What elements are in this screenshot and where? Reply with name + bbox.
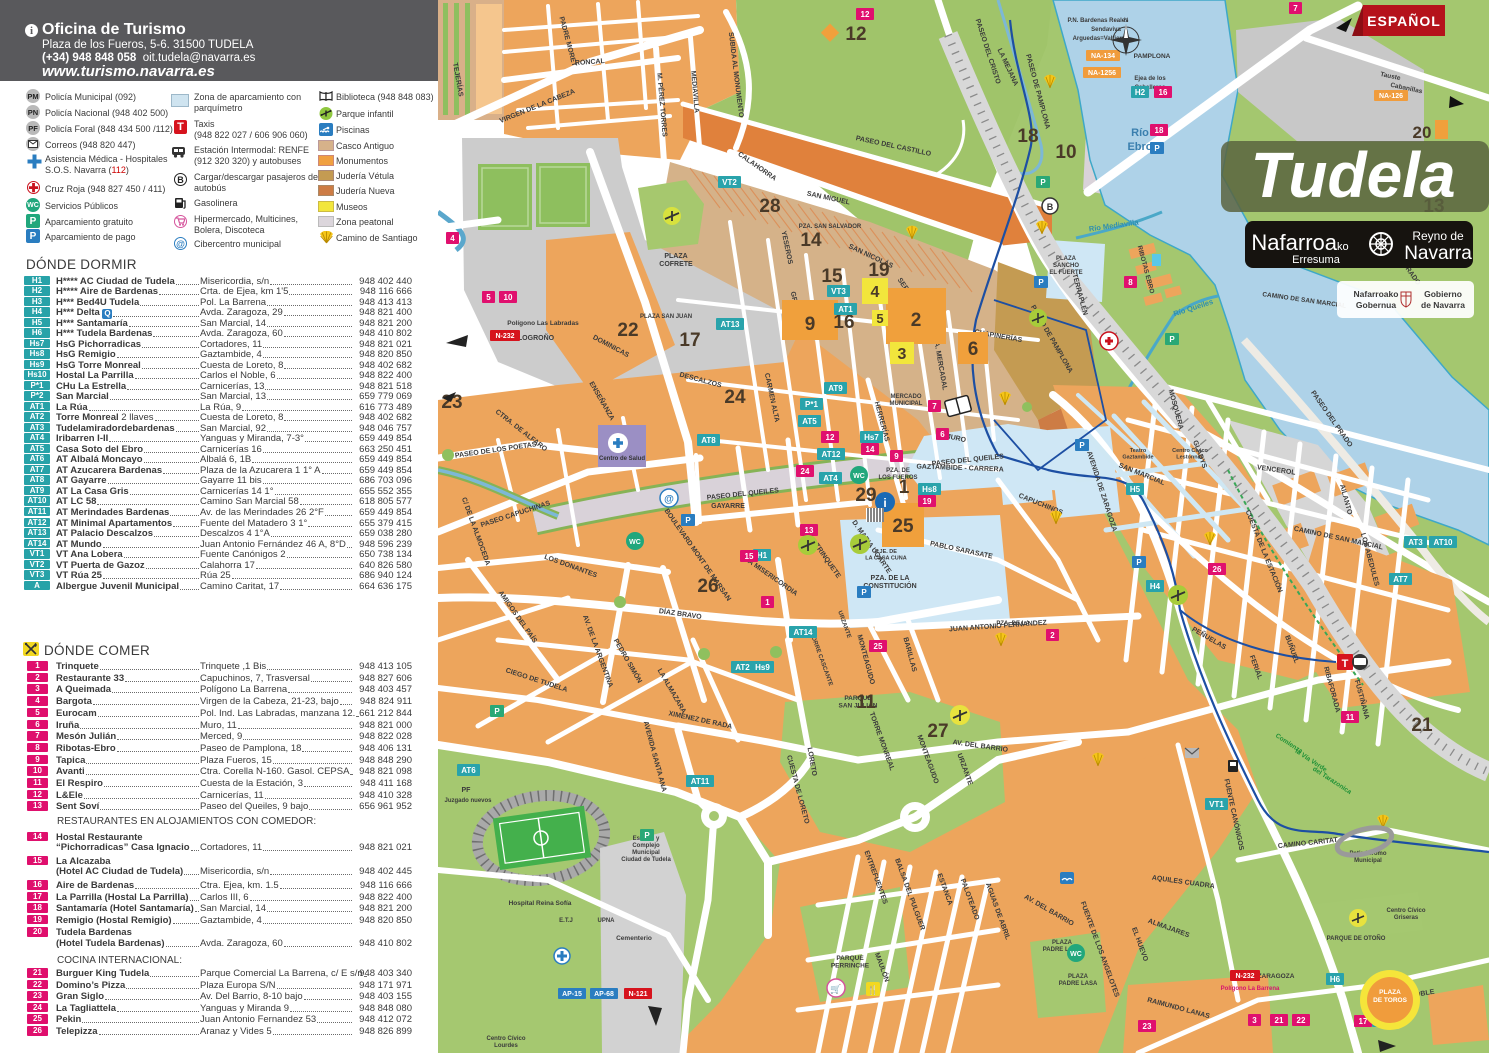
svg-text:Centro Cívico: Centro Cívico (1172, 448, 1208, 454)
svg-text:P: P (1079, 441, 1085, 450)
svg-text:P.JE. DE: P.JE. DE (875, 549, 897, 555)
svg-text:16: 16 (1159, 88, 1168, 97)
svg-text:8: 8 (1128, 278, 1133, 287)
svg-text:MUNICIPAL: MUNICIPAL (890, 401, 923, 407)
svg-text:7: 7 (1293, 4, 1298, 13)
svg-text:Erresuma: Erresuma (1292, 254, 1341, 266)
svg-text:Hs7: Hs7 (864, 433, 879, 442)
svg-text:Cementerio: Cementerio (616, 935, 652, 942)
svg-text:22: 22 (1297, 1016, 1306, 1025)
svg-text:Nafarroako: Nafarroako (1354, 289, 1399, 299)
svg-text:i: i (883, 496, 886, 510)
svg-text:E.T.J: E.T.J (559, 918, 573, 924)
svg-text:AT6: AT6 (461, 766, 476, 775)
svg-text:COFRETE: COFRETE (659, 261, 693, 268)
svg-text:21: 21 (1275, 1016, 1284, 1025)
svg-text:H2: H2 (1135, 88, 1146, 97)
svg-text:Hospital Reina Sofía: Hospital Reina Sofía (509, 900, 572, 907)
svg-text:P: P (494, 707, 500, 716)
svg-text:10: 10 (1055, 142, 1076, 163)
svg-text:AT11: AT11 (691, 777, 710, 786)
svg-text:H6: H6 (1330, 975, 1341, 984)
svg-text:Centro Cívico: Centro Cívico (486, 1036, 525, 1042)
svg-text:Polígono La Barrena: Polígono La Barrena (1221, 986, 1280, 992)
svg-text:AT8: AT8 (701, 436, 716, 445)
svg-text:VT3: VT3 (831, 287, 846, 296)
svg-text:Ebro: Ebro (1127, 141, 1152, 153)
svg-text:Teatro: Teatro (1130, 448, 1147, 454)
svg-text:PAMPLONA: PAMPLONA (1134, 53, 1171, 60)
svg-text:PZA. DE LA: PZA. DE LA (871, 575, 910, 582)
svg-text:29: 29 (855, 485, 876, 506)
svg-text:PLAZA: PLAZA (1068, 974, 1089, 980)
svg-text:Griseras: Griseras (1394, 915, 1419, 921)
svg-text:EL FUERTE: EL FUERTE (1049, 270, 1082, 276)
svg-text:PERRINCHE: PERRINCHE (831, 963, 870, 970)
svg-text:6: 6 (968, 339, 979, 360)
svg-text:Ciudad de Tudela: Ciudad de Tudela (621, 857, 671, 863)
svg-text:VT1: VT1 (1209, 800, 1224, 809)
svg-text:Lourdes: Lourdes (494, 1043, 518, 1049)
svg-text:P: P (1038, 278, 1044, 287)
svg-text:SANCHO: SANCHO (1053, 263, 1079, 269)
svg-text:WC: WC (1070, 951, 1082, 958)
svg-text:15: 15 (821, 266, 843, 287)
svg-text:2: 2 (1050, 631, 1055, 640)
svg-text:PARQUE: PARQUE (836, 955, 864, 962)
svg-text:DE TOROS: DE TOROS (1373, 997, 1407, 1004)
svg-text:1: 1 (899, 477, 910, 498)
svg-text:PZA. DE: PZA. DE (886, 468, 910, 474)
svg-text:AT1: AT1 (838, 305, 853, 314)
svg-text:PF: PF (462, 787, 472, 794)
svg-text:Municipal: Municipal (632, 850, 660, 856)
svg-text:N-232: N-232 (495, 333, 514, 340)
svg-text:4: 4 (871, 284, 880, 301)
svg-text:24: 24 (724, 387, 746, 408)
svg-text:ZARAGOZA: ZARAGOZA (1258, 973, 1295, 980)
svg-text:UPNA: UPNA (597, 918, 615, 924)
svg-text:AT14: AT14 (794, 628, 814, 637)
svg-text:P.N. Bardenas Reales: P.N. Bardenas Reales (1068, 18, 1130, 24)
svg-text:Polígono Las Labradas: Polígono Las Labradas (507, 320, 579, 327)
svg-text:CONSTITUCIÓN: CONSTITUCIÓN (863, 581, 916, 590)
svg-text:9: 9 (894, 452, 899, 461)
svg-text:AT13: AT13 (721, 320, 741, 329)
svg-text:22: 22 (617, 320, 638, 341)
svg-text:6: 6 (940, 430, 945, 439)
svg-text:N-121: N-121 (628, 991, 647, 998)
svg-text:LOGROÑO: LOGROÑO (518, 333, 555, 342)
svg-text:21: 21 (1411, 715, 1433, 736)
svg-text:Gobernua: Gobernua (1356, 300, 1396, 310)
svg-text:PZA. DE LA: PZA. DE LA (996, 621, 1030, 627)
svg-text:12: 12 (861, 10, 870, 19)
svg-text:WC: WC (853, 473, 865, 480)
svg-text:PADRE LASA: PADRE LASA (1059, 981, 1098, 987)
svg-text:26: 26 (1213, 565, 1222, 574)
svg-text:P: P (1154, 144, 1160, 153)
svg-text:🍴: 🍴 (867, 984, 878, 996)
svg-text:@: @ (664, 494, 674, 505)
svg-text:3: 3 (898, 346, 907, 363)
svg-text:2: 2 (911, 310, 922, 331)
svg-text:19: 19 (923, 497, 932, 506)
svg-text:🛒: 🛒 (830, 983, 841, 994)
svg-text:14: 14 (800, 230, 822, 251)
svg-text:Centro Cívico: Centro Cívico (1386, 908, 1425, 914)
svg-text:PLAZA: PLAZA (1379, 989, 1401, 996)
svg-text:16: 16 (833, 312, 854, 333)
svg-text:Reyno de: Reyno de (1412, 229, 1464, 243)
svg-text:Complejo: Complejo (632, 843, 660, 849)
svg-text:PARQUE DE OTOÑO: PARQUE DE OTOÑO (1327, 935, 1386, 942)
svg-text:12: 12 (845, 24, 866, 45)
svg-text:Centro de Salud: Centro de Salud (599, 456, 645, 462)
svg-text:Ejea de los: Ejea de los (1134, 76, 1166, 82)
svg-text:Municipal: Municipal (1354, 858, 1382, 864)
svg-text:Gobierno: Gobierno (1424, 289, 1462, 299)
svg-text:Río: Río (1131, 127, 1149, 139)
svg-text:LA CASA CUNA: LA CASA CUNA (865, 556, 906, 562)
svg-text:24: 24 (801, 467, 810, 476)
svg-text:25: 25 (892, 516, 914, 537)
svg-text:10: 10 (504, 293, 513, 302)
svg-text:18: 18 (1017, 126, 1038, 147)
svg-text:PLAZA: PLAZA (1052, 940, 1073, 946)
svg-text:1: 1 (765, 598, 770, 607)
svg-text:19: 19 (868, 260, 889, 281)
svg-text:11: 11 (856, 692, 877, 713)
svg-text:Juzgado nuevos: Juzgado nuevos (444, 798, 492, 804)
svg-text:P: P (685, 516, 691, 525)
svg-text:H4: H4 (1150, 582, 1161, 591)
svg-text:T: T (1342, 658, 1349, 670)
svg-text:23: 23 (1143, 1022, 1152, 1031)
svg-text:AT5: AT5 (802, 417, 817, 426)
svg-text:PLAZA SAN JUAN: PLAZA SAN JUAN (640, 314, 692, 320)
svg-text:P: P (1169, 335, 1175, 344)
svg-text:26: 26 (697, 576, 718, 597)
svg-text:28: 28 (759, 196, 780, 217)
svg-text:AP-15: AP-15 (562, 991, 582, 998)
svg-text:ESPAÑOL: ESPAÑOL (1367, 12, 1441, 29)
svg-text:14: 14 (866, 445, 875, 454)
svg-text:Gaztambide: Gaztambide (1122, 455, 1153, 461)
svg-text:9: 9 (805, 314, 816, 335)
svg-text:AT10: AT10 (1434, 538, 1454, 547)
svg-text:AT9: AT9 (828, 384, 843, 393)
svg-text:Navarra: Navarra (1404, 243, 1472, 264)
svg-text:VT2: VT2 (722, 178, 737, 187)
svg-text:H1: H1 (757, 551, 768, 560)
svg-text:P*1: P*1 (805, 400, 818, 409)
svg-text:Lestonnac: Lestonnac (1176, 455, 1204, 461)
svg-text:18: 18 (1155, 126, 1164, 135)
svg-text:11: 11 (1346, 713, 1355, 722)
svg-text:7: 7 (932, 402, 937, 411)
svg-text:GAYARRE: GAYARRE (711, 503, 745, 510)
svg-text:Tudela: Tudela (1250, 139, 1455, 211)
svg-text:Hs8: Hs8 (922, 485, 937, 494)
svg-text:H5: H5 (1130, 485, 1141, 494)
svg-text:WC: WC (629, 539, 641, 546)
svg-text:5: 5 (486, 293, 491, 302)
svg-text:17: 17 (679, 330, 700, 351)
svg-text:AT2: AT2 (735, 663, 750, 672)
svg-text:N-232: N-232 (1235, 973, 1254, 980)
svg-text:AP-68: AP-68 (594, 991, 614, 998)
svg-text:15: 15 (745, 552, 754, 561)
svg-text:PLAZA: PLAZA (664, 253, 687, 260)
svg-text:N: N (1124, 18, 1128, 24)
svg-text:5: 5 (876, 311, 883, 326)
svg-text:4: 4 (450, 234, 455, 243)
svg-text:de Navarra: de Navarra (1421, 300, 1465, 310)
svg-text:13: 13 (805, 526, 814, 535)
svg-text:NA-126: NA-126 (1379, 93, 1403, 100)
svg-text:P: P (644, 831, 650, 840)
svg-text:Hs9: Hs9 (755, 663, 770, 672)
svg-text:P: P (1136, 558, 1142, 567)
svg-text:25: 25 (874, 642, 883, 651)
svg-text:Nafarroako: Nafarroako (1251, 230, 1348, 255)
svg-text:AT3: AT3 (1408, 538, 1423, 547)
svg-text:12: 12 (826, 433, 835, 442)
svg-text:AT7: AT7 (1393, 575, 1408, 584)
svg-text:27: 27 (927, 721, 948, 742)
svg-text:P: P (1040, 178, 1046, 187)
svg-text:NA-134: NA-134 (1091, 53, 1115, 60)
svg-text:P: P (861, 588, 867, 597)
svg-text:3: 3 (1252, 1016, 1257, 1025)
svg-text:AT12: AT12 (822, 450, 842, 459)
svg-text:MERCADO: MERCADO (891, 394, 922, 400)
svg-text:PLAZA: PLAZA (1056, 256, 1077, 262)
svg-text:AT4: AT4 (823, 474, 838, 483)
svg-text:B: B (1047, 202, 1054, 212)
svg-text:NA-1256: NA-1256 (1088, 70, 1116, 77)
